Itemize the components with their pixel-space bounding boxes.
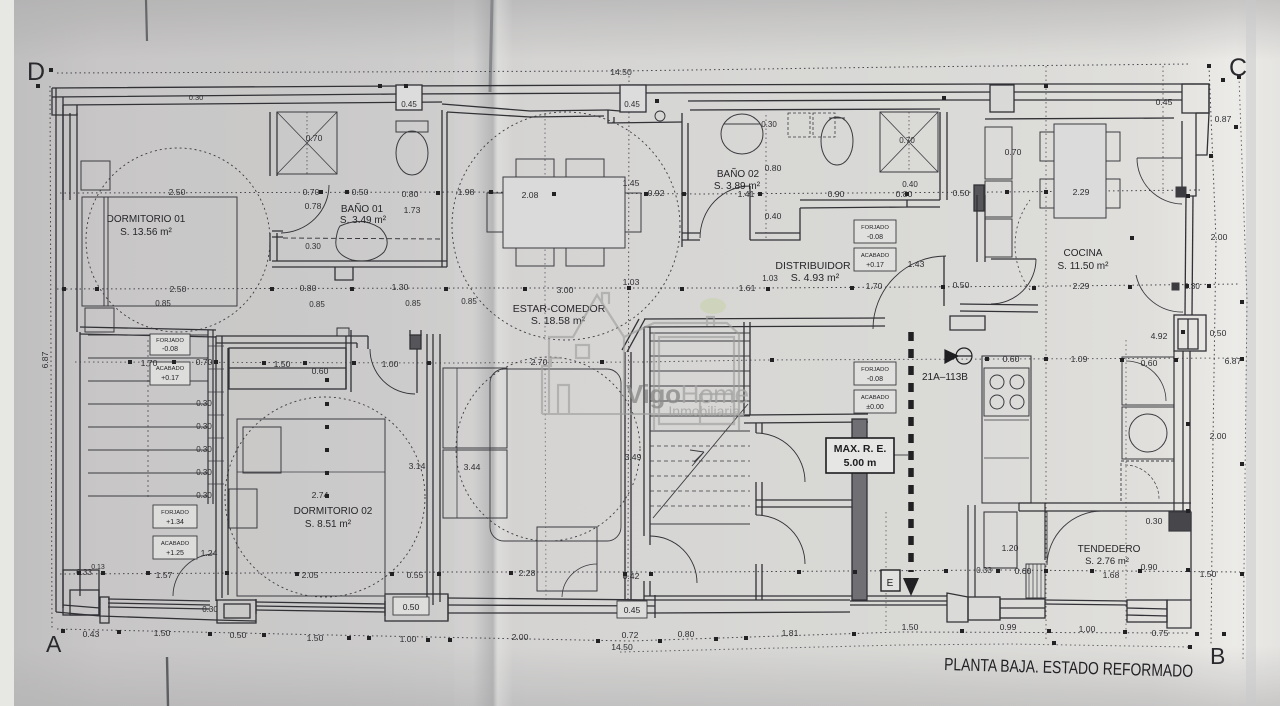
svg-text:0.60: 0.60 [1003,354,1020,364]
svg-text:0.50: 0.50 [1210,328,1227,338]
svg-text:0.60: 0.60 [312,366,329,376]
svg-text:+1.25: +1.25 [166,550,184,557]
svg-text:3.00: 3.00 [557,285,574,295]
svg-text:6.87: 6.87 [40,351,50,368]
svg-text:0.80: 0.80 [896,189,913,199]
svg-text:1.50: 1.50 [1200,569,1217,579]
svg-text:S. 4.93 m²: S. 4.93 m² [791,272,840,284]
svg-text:2.00: 2.00 [512,632,529,642]
svg-text:1.50: 1.50 [307,633,324,643]
svg-text:0.45: 0.45 [624,605,641,615]
svg-text:-0.08: -0.08 [867,234,883,241]
svg-text:0.80: 0.80 [765,163,782,173]
svg-text:ACABADO: ACABADO [861,395,890,401]
svg-text:0.70: 0.70 [306,133,323,143]
svg-text:0.30: 0.30 [189,93,204,102]
svg-text:S. 8.51 m²: S. 8.51 m² [305,519,352,530]
svg-text:TENDEDERO: TENDEDERO [1078,544,1141,555]
svg-text:0.70: 0.70 [899,136,915,145]
svg-text:0.30: 0.30 [196,445,212,454]
svg-text:FORJADO: FORJADO [161,510,189,516]
svg-text:B: B [1210,643,1225,669]
svg-text:1.70: 1.70 [141,358,158,368]
svg-text:0.50: 0.50 [352,187,369,197]
svg-text:0.70: 0.70 [1005,147,1022,157]
svg-text:2.29: 2.29 [1073,281,1090,291]
svg-text:E: E [887,578,894,589]
svg-text:1.24: 1.24 [201,548,218,558]
svg-text:+0.17: +0.17 [161,375,179,382]
svg-text:S. 11.50 m²: S. 11.50 m² [1058,261,1110,272]
svg-text:1.73: 1.73 [404,205,421,215]
svg-text:ACABADO: ACABADO [861,253,890,259]
svg-text:0.87: 0.87 [1215,114,1232,124]
svg-text:0.70: 0.70 [303,187,320,197]
svg-text:14.50: 14.50 [610,67,632,77]
svg-text:1.00: 1.00 [1079,624,1096,634]
svg-text:0.13: 0.13 [91,564,105,571]
svg-text:0.30: 0.30 [196,399,212,408]
svg-text:0.45: 0.45 [1156,97,1173,107]
svg-text:0.72: 0.72 [622,630,639,640]
svg-text:21A–113B: 21A–113B [922,372,968,383]
svg-text:BAÑO 01: BAÑO 01 [341,202,384,215]
svg-text:0.43: 0.43 [83,629,100,639]
svg-text:3.49: 3.49 [625,452,642,462]
svg-text:1.03: 1.03 [623,277,640,287]
svg-text:+1.34: +1.34 [166,519,184,526]
svg-text:0.30: 0.30 [761,120,777,129]
svg-text:-0.08: -0.08 [867,376,883,383]
svg-text:ACABADO: ACABADO [161,541,190,547]
svg-text:-0.08: -0.08 [162,346,178,353]
svg-text:3.44: 3.44 [464,462,481,472]
svg-text:1.57: 1.57 [156,570,173,580]
svg-text:1.30: 1.30 [392,282,409,292]
svg-text:1.61: 1.61 [739,283,756,293]
svg-text:1.68: 1.68 [1103,570,1120,580]
svg-text:0.30: 0.30 [1146,516,1163,526]
svg-text:+0.17: +0.17 [866,262,884,269]
svg-text:2.50: 2.50 [169,187,186,197]
svg-text:0.90: 0.90 [828,189,845,199]
svg-text:0.75: 0.75 [1152,628,1169,638]
svg-text:0.45: 0.45 [401,100,417,109]
svg-text:0.40: 0.40 [765,211,782,221]
svg-text:0.85: 0.85 [405,299,421,308]
svg-text:0.40: 0.40 [902,180,918,189]
svg-text:0.30: 0.30 [196,422,212,431]
svg-text:1.09: 1.09 [1071,354,1088,364]
svg-text:2.00: 2.00 [1211,232,1228,242]
svg-text:0.50: 0.50 [953,280,970,290]
svg-text:0.50: 0.50 [953,188,970,198]
svg-text:1.20: 1.20 [1002,543,1019,553]
svg-text:0.60: 0.60 [1015,566,1032,576]
svg-text:1.41: 1.41 [738,189,755,199]
svg-text:0.85: 0.85 [309,300,325,309]
svg-text:0.99: 0.99 [1000,622,1017,632]
svg-text:DORMITORIO 01: DORMITORIO 01 [107,214,186,225]
svg-text:Inmobiliaria: Inmobiliaria [668,403,740,419]
svg-text:MAX. R. E.: MAX. R. E. [834,443,887,455]
svg-text:0.60: 0.60 [1141,358,1158,368]
svg-text:DISTRIBUIDOR: DISTRIBUIDOR [775,260,851,272]
svg-text:2.00: 2.00 [1210,431,1227,441]
svg-text:0.33: 0.33 [976,566,992,575]
svg-text:2.08: 2.08 [522,190,539,200]
svg-text:DORMITORIO 02: DORMITORIO 02 [294,506,373,517]
svg-text:C: C [1229,54,1247,82]
svg-text:1.45: 1.45 [623,178,640,188]
svg-text:1.00: 1.00 [382,359,399,369]
svg-text:3.14: 3.14 [409,461,426,471]
svg-text:0.80: 0.80 [678,629,695,639]
svg-text:D: D [27,58,45,86]
svg-text:0.50: 0.50 [403,602,420,612]
svg-text:5.00 m: 5.00 m [844,457,877,469]
svg-text:0.70: 0.70 [196,357,213,367]
svg-text:6.87: 6.87 [1225,356,1242,366]
svg-text:4.92: 4.92 [1151,331,1168,341]
svg-text:2.05: 2.05 [302,570,319,580]
svg-text:0.50: 0.50 [230,630,247,640]
svg-text:0.45: 0.45 [624,100,640,109]
svg-text:1.50: 1.50 [154,628,171,638]
svg-text:COCINA: COCINA [1064,248,1103,259]
svg-text:1.43: 1.43 [908,259,925,269]
svg-text:1.50: 1.50 [902,622,919,632]
svg-text:0.85: 0.85 [155,299,171,308]
svg-text:0.90: 0.90 [1141,562,1158,572]
svg-text:S. 3.49 m²: S. 3.49 m² [340,215,387,226]
svg-text:0.80: 0.80 [402,189,419,199]
svg-text:±0.00: ±0.00 [866,404,884,411]
svg-text:A: A [46,631,62,657]
svg-text:1.03: 1.03 [762,274,778,283]
svg-text:0.80: 0.80 [300,283,317,293]
svg-text:S. 18.58 m²: S. 18.58 m² [531,315,586,327]
svg-text:1.98: 1.98 [458,187,475,197]
svg-text:0.85: 0.85 [461,297,477,306]
svg-text:BAÑO 02: BAÑO 02 [717,167,760,180]
svg-text:2.50: 2.50 [170,284,187,294]
svg-text:FORJADO: FORJADO [861,367,889,373]
svg-text:0.30: 0.30 [202,605,218,614]
svg-text:0.30: 0.30 [305,242,321,251]
svg-text:FORJADO: FORJADO [156,338,184,344]
svg-text:1.50: 1.50 [274,359,291,369]
svg-text:1.70: 1.70 [866,281,883,291]
svg-text:0.30: 0.30 [196,491,212,500]
svg-text:1.00: 1.00 [400,634,417,644]
svg-text:0.78: 0.78 [305,201,322,211]
svg-text:2.28: 2.28 [519,568,536,578]
svg-text:0.55: 0.55 [407,570,424,580]
svg-text:0.30: 0.30 [196,468,212,477]
svg-text:14.50: 14.50 [611,642,633,652]
svg-text:2.29: 2.29 [1073,187,1090,197]
svg-text:ACABADO: ACABADO [156,366,185,372]
svg-text:1.81: 1.81 [782,628,799,638]
svg-text:S. 13.56 m²: S. 13.56 m² [120,227,172,238]
svg-text:FORJADO: FORJADO [861,225,889,231]
svg-text:S. 2.76 m²: S. 2.76 m² [1085,556,1129,567]
svg-text:0.92: 0.92 [648,188,665,198]
